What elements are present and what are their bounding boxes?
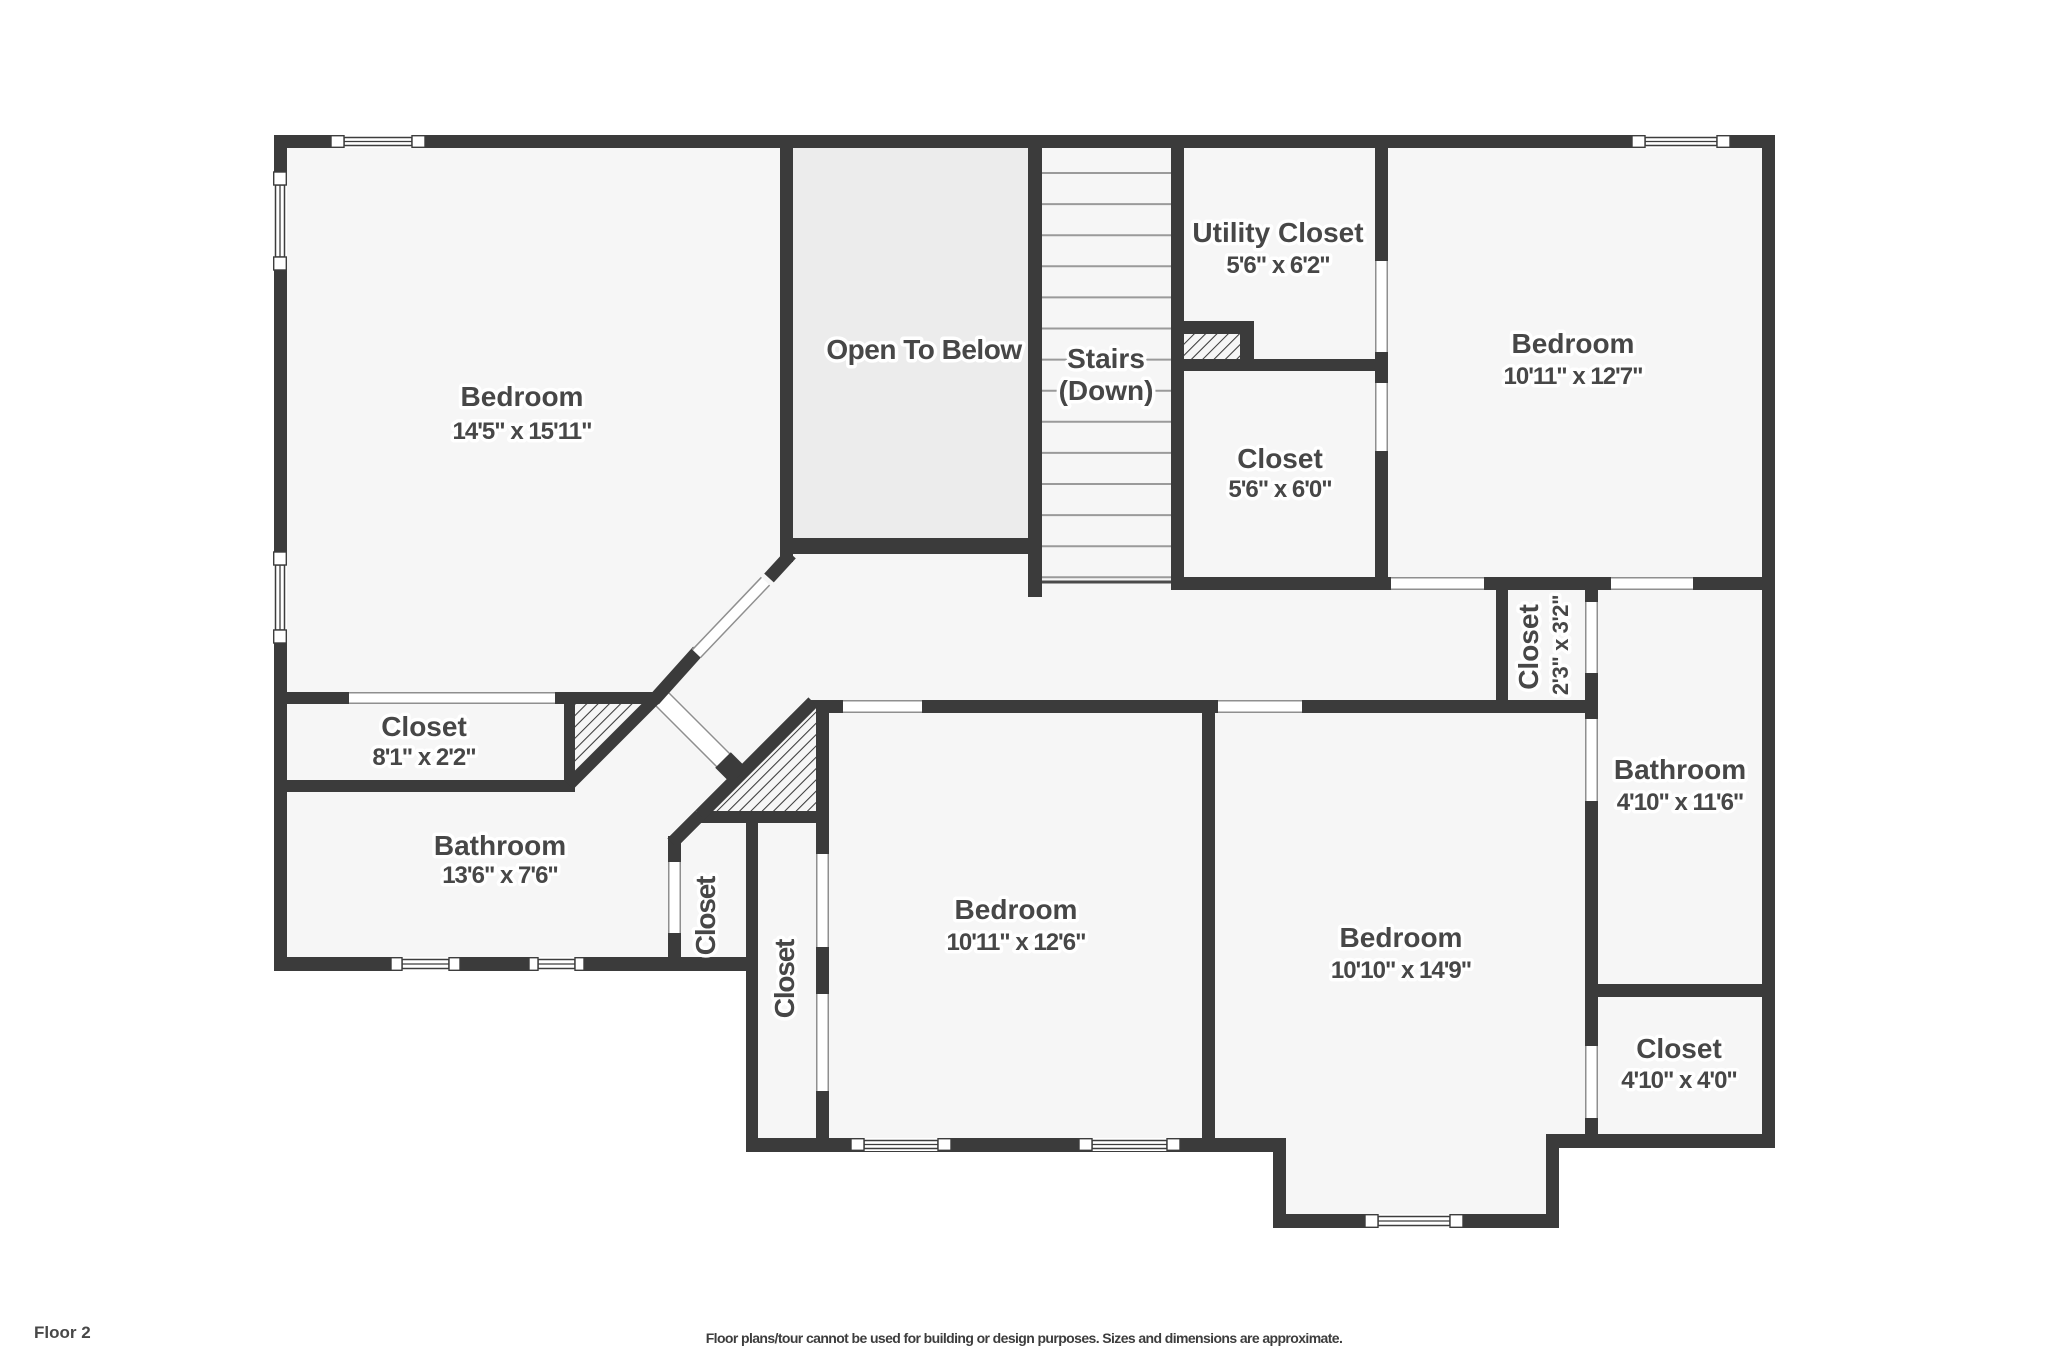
svg-text:(Down): (Down) <box>1059 375 1154 406</box>
svg-text:4'10" x 4'0": 4'10" x 4'0" <box>1621 1067 1737 1094</box>
svg-text:14'5" x 15'11": 14'5" x 15'11" <box>453 418 592 445</box>
svg-text:Closet: Closet <box>1513 604 1544 690</box>
svg-text:10'11" x 12'7": 10'11" x 12'7" <box>1504 363 1643 390</box>
svg-text:Bedroom: Bedroom <box>461 381 584 412</box>
svg-text:Bedroom: Bedroom <box>955 894 1078 925</box>
svg-text:Closet: Closet <box>769 939 800 1018</box>
svg-text:10'11" x 12'6": 10'11" x 12'6" <box>947 929 1086 956</box>
svg-text:Floor plans/tour cannot be use: Floor plans/tour cannot be used for buil… <box>706 1330 1343 1346</box>
svg-text:Bedroom: Bedroom <box>1512 328 1635 359</box>
svg-text:Floor 2: Floor 2 <box>34 1323 91 1342</box>
svg-text:Closet: Closet <box>381 711 467 742</box>
svg-text:Bathroom: Bathroom <box>434 830 566 861</box>
svg-text:2'3" x 3'2": 2'3" x 3'2" <box>1548 595 1573 695</box>
svg-text:Bathroom: Bathroom <box>1614 754 1746 785</box>
svg-text:Utility Closet: Utility Closet <box>1192 217 1363 248</box>
svg-text:Open To Below: Open To Below <box>826 334 1022 365</box>
svg-text:5'6" x 6'0": 5'6" x 6'0" <box>1228 476 1331 503</box>
svg-text:Closet: Closet <box>1636 1033 1722 1064</box>
svg-text:8'1" x 2'2": 8'1" x 2'2" <box>372 744 475 771</box>
svg-text:4'10" x 11'6": 4'10" x 11'6" <box>1617 789 1744 816</box>
svg-text:Closet: Closet <box>1237 443 1323 474</box>
svg-text:13'6" x 7'6": 13'6" x 7'6" <box>442 862 558 889</box>
svg-text:10'10" x 14'9": 10'10" x 14'9" <box>1331 957 1471 984</box>
svg-text:Closet: Closet <box>690 876 721 955</box>
svg-text:Bedroom: Bedroom <box>1340 922 1463 953</box>
svg-text:Stairs: Stairs <box>1067 343 1145 374</box>
svg-text:5'6" x 6'2": 5'6" x 6'2" <box>1226 252 1329 279</box>
